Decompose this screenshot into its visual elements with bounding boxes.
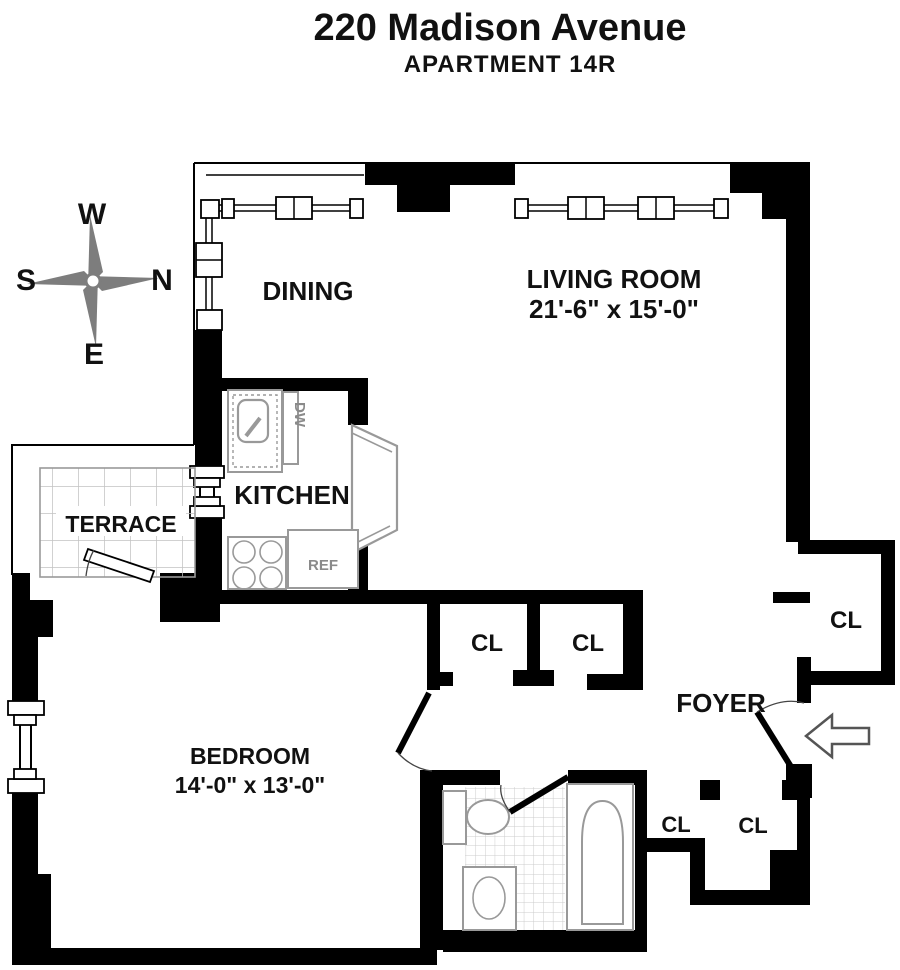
compass-rose-icon: W S N E xyxy=(16,198,173,371)
compass-south: S xyxy=(16,264,36,297)
window-icon xyxy=(201,200,219,218)
foyer-closet-label: CL xyxy=(830,607,862,634)
entry-door xyxy=(757,712,798,778)
entrance-arrow-icon xyxy=(806,715,869,757)
window-icon xyxy=(515,199,528,218)
compass-east: E xyxy=(84,338,104,371)
foyer-label: FOYER xyxy=(676,688,766,718)
floorplan-page: 220 Madison Avenue APARTMENT 14R W S N E xyxy=(0,0,900,970)
toilet-bowl xyxy=(467,800,509,834)
entry-closet-1-label: CL xyxy=(661,812,690,837)
bedroom-dimensions: 14'-0" x 13'-0" xyxy=(175,772,325,798)
living-room-dimensions: 21'-6" x 15'-0" xyxy=(529,294,699,324)
window-icon xyxy=(350,199,363,218)
hall-closet-1-label: CL xyxy=(471,630,503,657)
hall-closet-2-label: CL xyxy=(572,630,604,657)
window-icon xyxy=(222,199,234,218)
window-icon xyxy=(197,310,222,330)
toilet-tank xyxy=(443,791,466,844)
kitchen-sink xyxy=(238,400,268,442)
compass-north: N xyxy=(151,264,173,297)
compass-west: W xyxy=(78,198,107,231)
bedroom-door xyxy=(398,693,429,753)
entry-closet-2-label: CL xyxy=(738,813,767,838)
dishwasher-label: DW xyxy=(291,402,308,428)
bedroom-label: BEDROOM xyxy=(190,743,310,769)
page-subtitle: APARTMENT 14R xyxy=(404,51,617,78)
living-room-label: LIVING ROOM xyxy=(527,264,702,294)
floorplan-svg: 220 Madison Avenue APARTMENT 14R W S N E xyxy=(0,0,900,970)
terrace-label: TERRACE xyxy=(65,511,176,537)
bathroom xyxy=(443,777,633,930)
terrace: TERRACE xyxy=(40,468,195,582)
kitchen-label: KITCHEN xyxy=(234,480,350,510)
dining-label: DINING xyxy=(263,276,354,306)
page-title: 220 Madison Avenue xyxy=(313,7,686,49)
bedroom-window xyxy=(8,701,44,793)
refrigerator-label: REF xyxy=(308,557,338,574)
window-icon xyxy=(714,199,728,218)
